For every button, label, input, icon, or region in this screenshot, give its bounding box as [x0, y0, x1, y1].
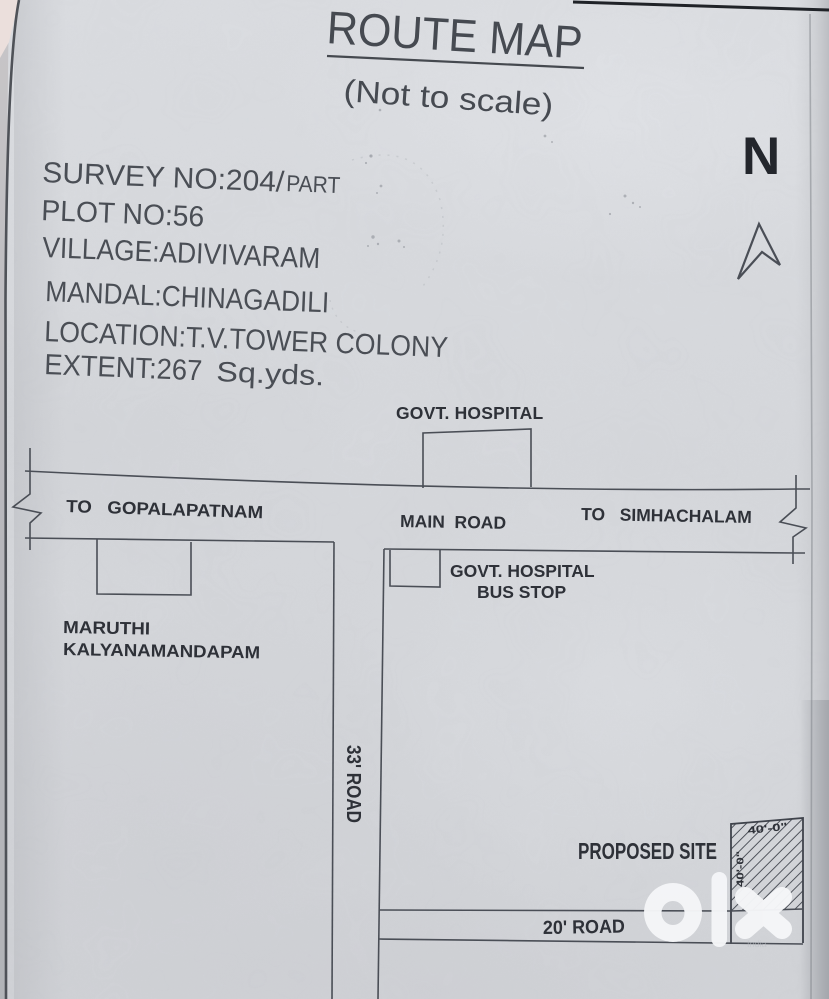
svg-text:BUS STOP: BUS STOP	[477, 582, 566, 602]
svg-text:MARUTHI: MARUTHI	[63, 617, 150, 639]
svg-text:EXTENT:267: EXTENT:267	[44, 349, 203, 387]
svg-text:GOVT. HOSPITAL: GOVT. HOSPITAL	[450, 561, 595, 581]
svg-text:TO SIMHACHALAM: TO SIMHACHALAM	[581, 504, 752, 527]
svg-text:PROPOSED SITE: PROPOSED SITE	[578, 838, 717, 864]
svg-text:PLOT NO:56: PLOT NO:56	[41, 195, 205, 234]
svg-text:Sq.yds.: Sq.yds.	[216, 356, 325, 391]
svg-text:KALYANAMANDAPAM: KALYANAMANDAPAM	[63, 639, 260, 662]
svg-text:33' ROAD: 33' ROAD	[342, 745, 364, 823]
svg-text:20' ROAD: 20' ROAD	[543, 917, 625, 939]
svg-text:PART: PART	[286, 170, 341, 198]
svg-text:40'-0": 40'-0"	[735, 851, 747, 887]
svg-text:MAIN ROAD: MAIN ROAD	[400, 511, 506, 533]
svg-text:N: N	[742, 127, 780, 186]
svg-text:India: India	[747, 939, 767, 949]
svg-text:GOVT. HOSPITAL: GOVT. HOSPITAL	[396, 403, 543, 423]
